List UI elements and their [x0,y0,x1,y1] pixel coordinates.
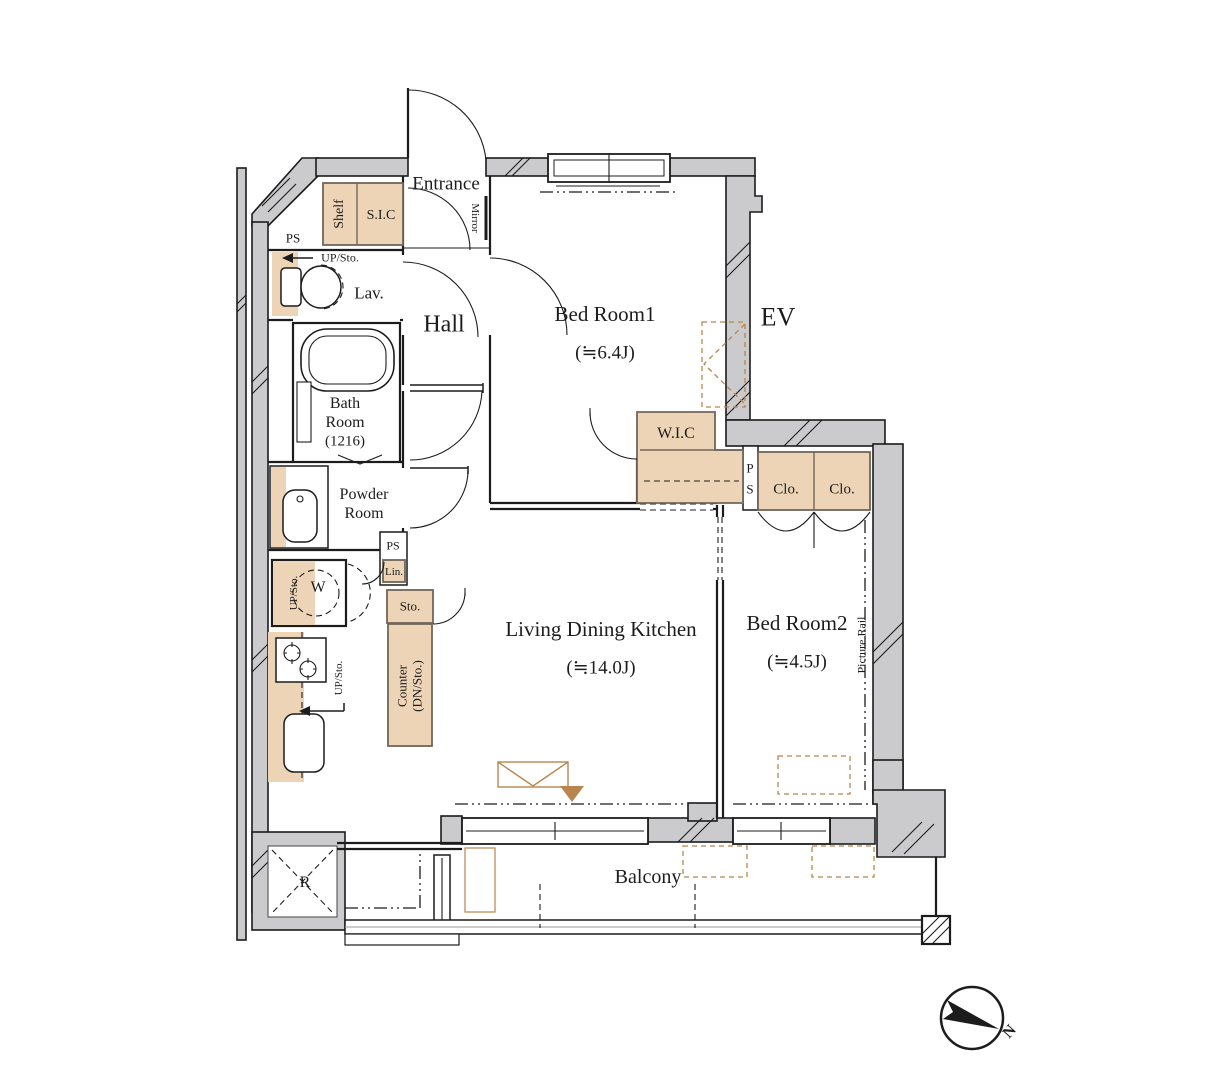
bathroom-label-line1: Bath [330,395,360,413]
closet-right-label: Clo. [829,482,854,499]
pipe-shaft-s-label: S [746,483,753,498]
stove-icon [276,638,326,682]
pipe-space-top-label: PS [286,232,300,247]
wall-hatch-marks [237,158,934,878]
wic-label: W.I.C [657,425,695,443]
floor-plan: Entrance Shelf S.I.C PS UP/Sto. Lav. Mir… [0,0,1209,1086]
storage-door-icon [433,588,465,624]
elevator-label: EV [761,302,796,331]
mirror-label: Mirror [469,203,481,232]
closet-block [758,452,870,548]
up-storage-lavatory-label: UP/Sto. [321,251,359,264]
counter-label-line1: Counter [395,660,410,712]
powder-room-label-line1: Powder [340,486,389,504]
sic-label: S.I.C [367,208,396,224]
washing-machine-label: W [310,579,325,597]
linen-label: Lin. [385,566,403,578]
bedroom2-size-label: (≒4.5J) [767,651,827,672]
floor-hatch-icon [498,762,584,802]
ldk-size-label: (≒14.0J) [566,657,635,678]
up-storage-kitchen-label: UP/Sto. [333,661,345,696]
kitchen-up-storage-arrow [299,703,344,716]
entrance-label: Entrance [412,173,480,194]
counter-label: Counter (DN/Sto.) [395,660,424,712]
interior-walls [268,176,758,849]
vanity-sink-icon [270,466,328,548]
ac-outdoor-unit-icon [683,846,747,877]
compass-icon [941,987,1003,1049]
bedroom1-label: Bed Room1 [555,303,656,327]
storage-label: Sto. [400,600,421,615]
ac-outdoor-unit-icon [812,846,874,877]
kitchen-sink-icon [284,714,324,772]
pipe-space-mid-label: PS [386,539,399,552]
kitchen-fixtures [268,632,326,782]
ldk-label: Living Dining Kitchen [505,618,696,642]
bedroom1-size-label: (≒6.4J) [575,342,635,363]
powder-room-door-icon [410,470,468,528]
bathroom-label-line2: Room [325,414,364,432]
refrigerator-label: R [300,874,311,892]
ac-unit-icon [778,756,850,794]
hall-door-icon [410,391,482,460]
hall-label: Hall [423,312,464,339]
closet-left-label: Clo. [773,482,798,499]
bathroom-label-line3: (1216) [325,434,365,451]
picture-rail-label: Picture Rail [855,617,868,674]
entrance-door-icon [408,90,486,160]
counter-label-line2: (DN/Sto.) [410,660,425,712]
pipe-shaft-p-label: P [746,462,753,477]
windows [434,154,830,927]
lavatory-label: Lav. [354,283,384,302]
bedroom2-label: Bed Room2 [747,612,848,636]
balcony-label: Balcony [615,866,682,888]
reference-lines [345,192,868,908]
powder-room-label-line2: Room [344,505,383,523]
wic-door-icon [590,412,637,459]
floorplan-drawing [0,0,1209,1086]
shelf-label: Shelf [332,199,348,229]
up-storage-washer-label: UP/Sto. [288,576,300,611]
